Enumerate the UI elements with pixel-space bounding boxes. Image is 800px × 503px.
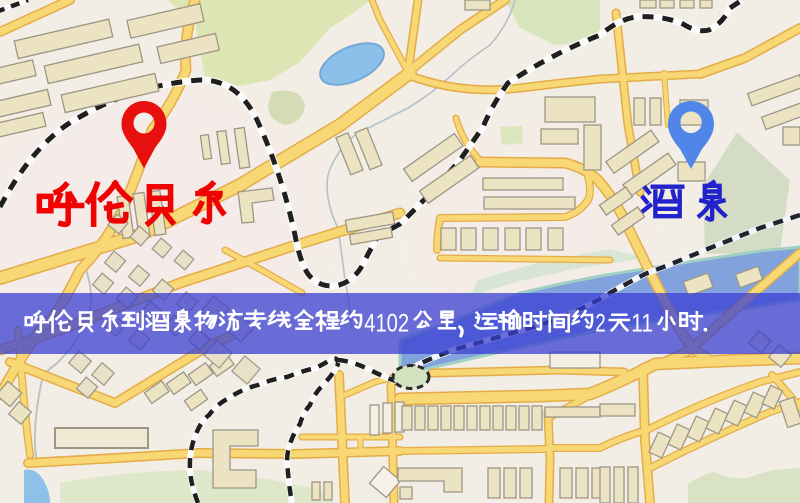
svg-text:2: 2	[595, 310, 606, 338]
svg-text:4102: 4102	[364, 310, 409, 338]
svg-text:11: 11	[631, 310, 653, 338]
